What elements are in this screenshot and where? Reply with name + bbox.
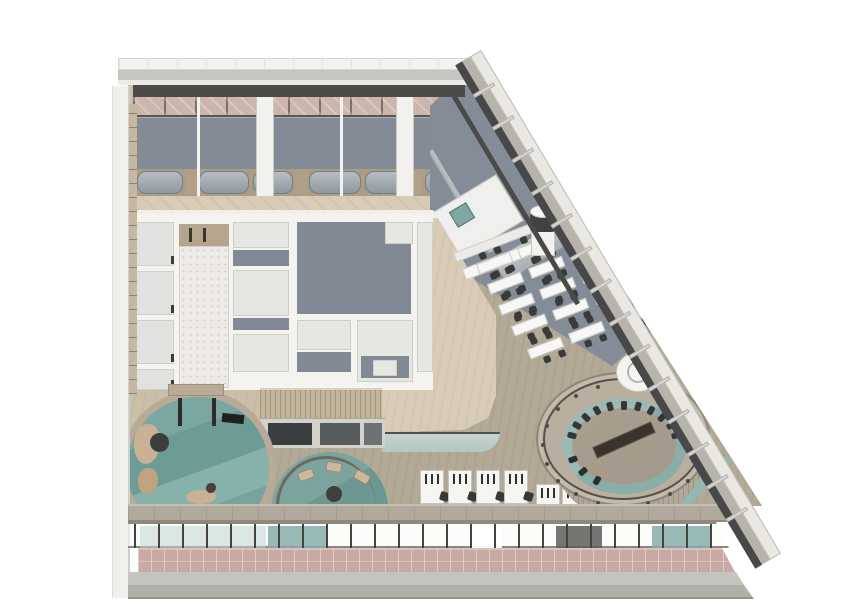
cabinet-top [297, 320, 351, 350]
mirror-slot [541, 488, 543, 498]
window-mullion [590, 524, 592, 550]
private-rooms-band [133, 92, 473, 196]
small-room [136, 320, 174, 364]
bottom-parapet [128, 504, 760, 522]
pool-door-lintel [168, 384, 224, 396]
dining-table [634, 266, 672, 289]
left-service-strip [129, 104, 137, 394]
window-mullion [254, 524, 256, 550]
small-room [136, 222, 174, 266]
wall-window [320, 423, 360, 445]
wall-slab [417, 222, 433, 372]
marble-room-header [179, 224, 229, 246]
glass-pane [472, 526, 502, 548]
window-mullion [566, 524, 568, 550]
plinth-lower [128, 585, 760, 599]
wood-slat-wall [260, 388, 382, 418]
dining-chair [650, 284, 659, 293]
door-tick [171, 305, 174, 313]
window-mullion [398, 524, 400, 550]
window-mullion [662, 524, 664, 550]
architectural-render-stage [0, 0, 866, 615]
dining-chair [667, 283, 676, 292]
top-facade-band [118, 70, 482, 80]
door-tick [171, 256, 174, 264]
marble-floor-room [179, 246, 229, 388]
pool-post [212, 398, 216, 426]
mirror-slot [493, 474, 495, 484]
mirror-slot [553, 488, 555, 498]
window-mullion [182, 524, 184, 550]
private-rooms-gray-floor [133, 117, 473, 169]
wall-window [268, 423, 312, 445]
room-floor [233, 250, 289, 266]
mirror-slot [481, 474, 483, 484]
dining-chair [636, 266, 645, 275]
railing-post [541, 443, 545, 447]
left-cut-wall [112, 86, 130, 598]
cabinet-top [233, 270, 289, 316]
dining-chair [665, 279, 674, 288]
top-facade-soffit [133, 85, 465, 97]
cabinet-top [233, 222, 289, 248]
mirror-slot [547, 488, 549, 498]
window-mullion [686, 524, 688, 550]
pool-post [178, 398, 182, 426]
dining-table [650, 289, 688, 312]
platform-glass-apron [382, 432, 500, 452]
mirror-slot [459, 474, 461, 484]
bottom-glazing-band [128, 522, 732, 548]
room-divider-corridor [256, 84, 274, 196]
wall-window [364, 423, 382, 445]
wood-door [185, 171, 197, 194]
curved-partition [309, 171, 361, 194]
central-service-block [133, 214, 433, 390]
dining-chair [666, 307, 675, 316]
mirror-slot [431, 474, 433, 484]
door-tick [171, 354, 174, 362]
room-floor [297, 352, 351, 372]
window-mullion [470, 524, 472, 550]
room-divider [340, 92, 343, 196]
window-mullion [446, 524, 448, 550]
window-mullion [278, 524, 280, 550]
mirror-slot [453, 474, 455, 484]
window-mullion [206, 524, 208, 550]
wood-door [295, 171, 307, 194]
window-mullion [638, 524, 640, 550]
glass-pane [652, 526, 710, 548]
room-floor [233, 318, 289, 330]
mirror-slot [487, 474, 489, 484]
mirror-slot [425, 474, 427, 484]
railing-post [574, 394, 578, 398]
curved-partition-row [133, 169, 473, 196]
dining-chair [681, 302, 690, 311]
railing-post [686, 479, 690, 483]
mirror-slot [509, 474, 511, 484]
window-mullion [542, 524, 544, 550]
window-mullion [710, 524, 712, 550]
mirror-slot [437, 474, 439, 484]
dining-chair [651, 260, 660, 269]
pink-terrace [138, 548, 738, 572]
door-post [189, 228, 192, 242]
glass-pane [556, 526, 602, 548]
door-post [203, 228, 206, 242]
top-facade-parapet [118, 58, 480, 70]
lounge-table [326, 486, 342, 502]
small-room [136, 271, 174, 315]
arena-seat [621, 401, 627, 410]
window-mullion [158, 524, 160, 550]
window-mullion [230, 524, 232, 550]
window-mullion [350, 524, 352, 550]
window-mullion [494, 524, 496, 550]
window-wall-band [260, 418, 385, 448]
floating-tray [150, 433, 169, 452]
window-mullion [302, 524, 304, 550]
window-mullion [518, 524, 520, 550]
room-divider [197, 92, 200, 196]
plinth-upper [128, 572, 750, 585]
window-mullion [326, 524, 328, 550]
mirror-slot [465, 474, 467, 484]
window-mullion [422, 524, 424, 550]
mirror-slot [515, 474, 517, 484]
white-table [373, 360, 397, 376]
cabinet-top [233, 334, 289, 372]
mirror-slot [521, 474, 523, 484]
cabinet-top [385, 222, 413, 244]
curved-partition [199, 171, 249, 194]
window-mullion [134, 524, 136, 550]
dining-chair [652, 289, 661, 298]
window-mullion [374, 524, 376, 550]
glass-pane [268, 526, 328, 548]
window-mullion [614, 524, 616, 550]
railing-post [545, 462, 549, 466]
curved-partition [137, 171, 183, 194]
room-divider-corridor [396, 84, 414, 196]
